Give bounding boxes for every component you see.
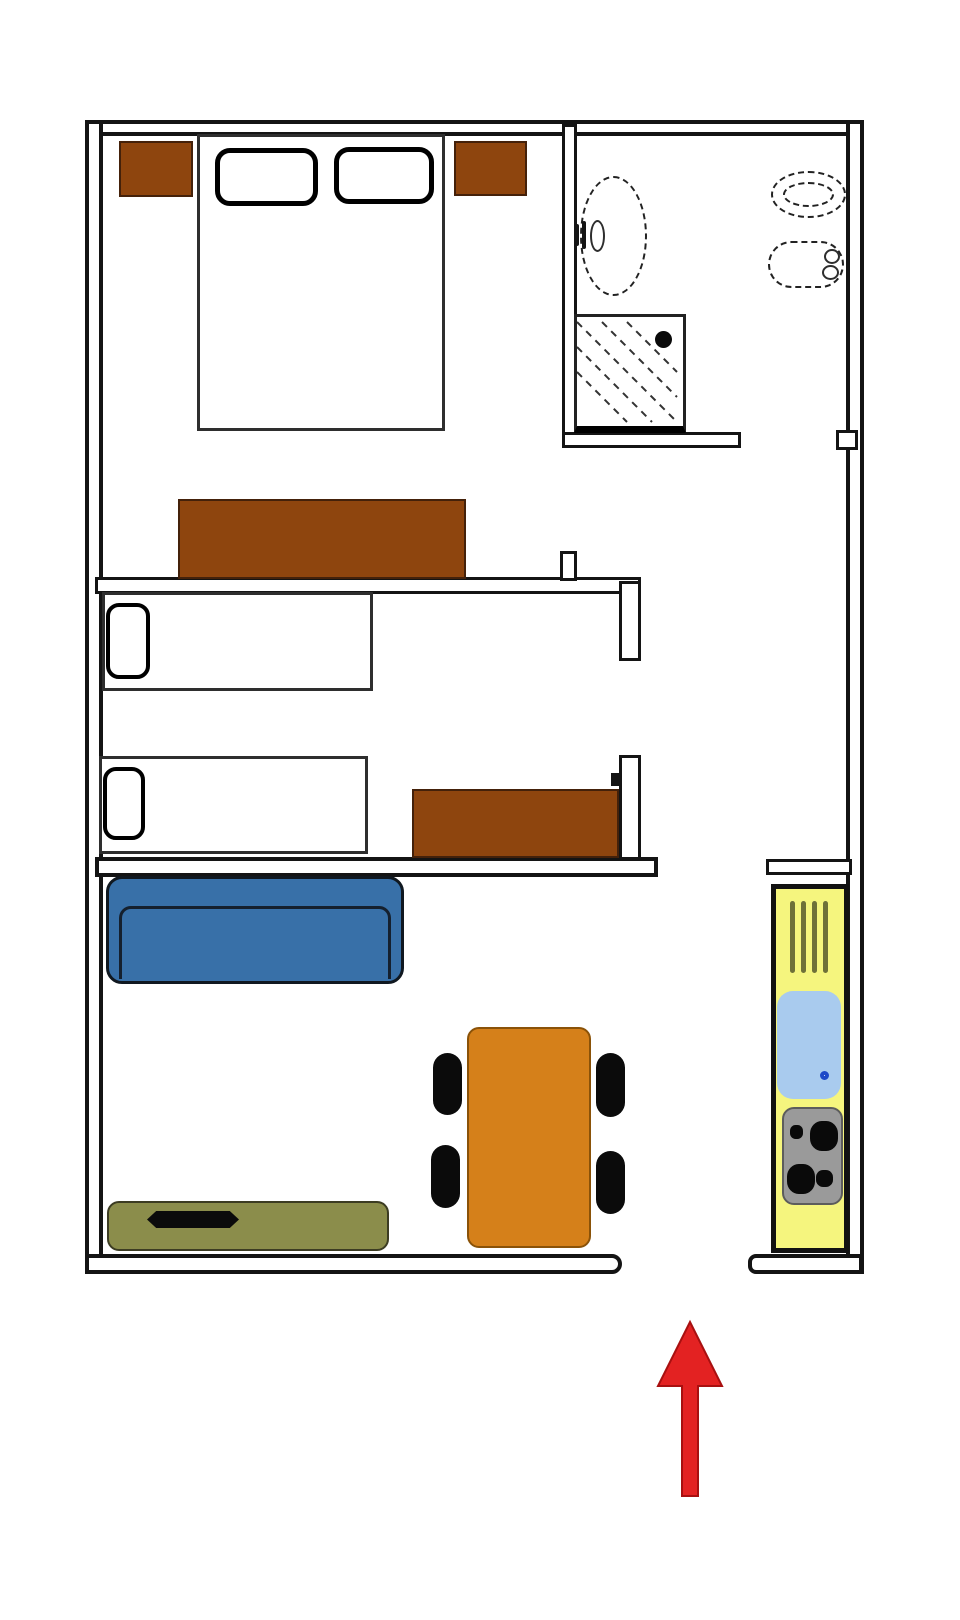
double-bed-pillow-left [215,148,318,206]
stove [782,1107,843,1205]
nightstand-right [454,141,527,196]
washbasin-tap-oval [590,220,605,252]
entrance-arrow-shape [658,1322,722,1496]
burner-small-top-left [790,1125,803,1139]
burner-small-bottom-right [816,1170,833,1187]
chair-top-left [433,1053,462,1115]
sink-drain [820,1071,829,1080]
shower-drain [655,331,672,348]
entrance-arrow [650,1310,740,1510]
sofa [106,876,404,984]
second-bedroom-door-nub [611,773,620,786]
toilet-inner [783,182,834,207]
chair-bottom-right [596,1151,625,1214]
washbasin-tap-bar-2 [582,221,586,249]
tv-unit [147,1211,239,1228]
radiator-bar-2 [801,901,806,973]
double-bed-pillow-right [334,147,434,204]
wall-second-bedroom-right-lower [619,755,641,863]
dining-table [467,1027,591,1248]
wall-outer-left [85,120,103,1274]
radiator-bar-4 [823,901,828,973]
burner-large-top-right [810,1121,838,1151]
washbasin-tap-bar-1 [575,224,579,246]
second-bedroom-dresser [412,789,619,858]
sideboard [107,1201,389,1251]
radiator-bar-3 [812,901,817,973]
wall-bottom-right-segment [748,1254,863,1274]
bidet-hole-1 [824,249,840,264]
wall-second-bedroom-right-upper [619,581,641,661]
chair-bottom-left [431,1145,460,1208]
wall-kitchen-top [766,859,852,875]
sofa-seat-line [119,906,391,979]
master-door-jamb-tick [560,551,577,581]
single-bed-lower-pillow [103,767,145,840]
radiator-bar-1 [790,901,795,973]
wall-living-room-top [95,857,658,877]
kitchen-sink [777,991,841,1099]
kitchen-unit [771,884,849,1253]
single-bed-upper-pillow [106,603,150,679]
master-dresser [178,499,466,579]
burner-large-bottom-left [787,1164,815,1194]
floor-plan [0,0,960,1620]
bathroom-door-stub [836,430,858,450]
chair-top-right [596,1053,625,1117]
shower-tray [574,314,686,433]
bidet-hole-2 [822,265,839,280]
nightstand-left [119,141,193,197]
wall-bathroom-bottom [562,432,741,448]
wall-bottom-left-segment [85,1254,622,1274]
